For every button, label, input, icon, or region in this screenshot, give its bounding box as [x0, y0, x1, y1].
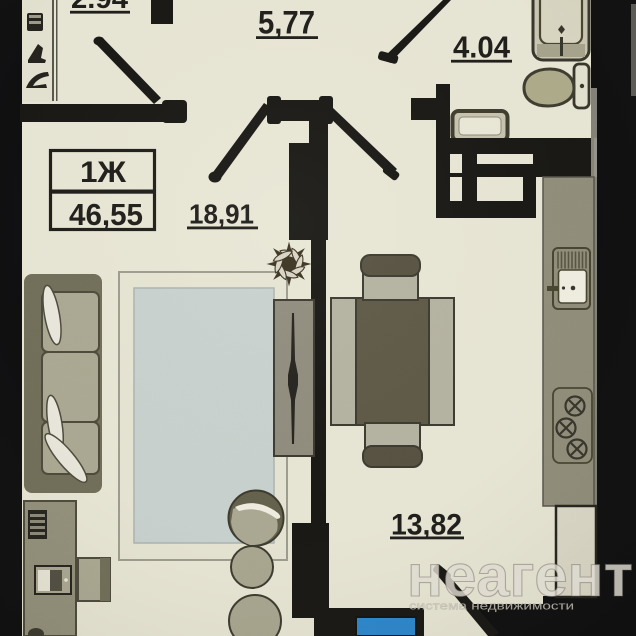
svg-text:неагент: неагент	[407, 543, 633, 609]
svg-text:система недвижимости: система недвижимости	[409, 601, 574, 613]
